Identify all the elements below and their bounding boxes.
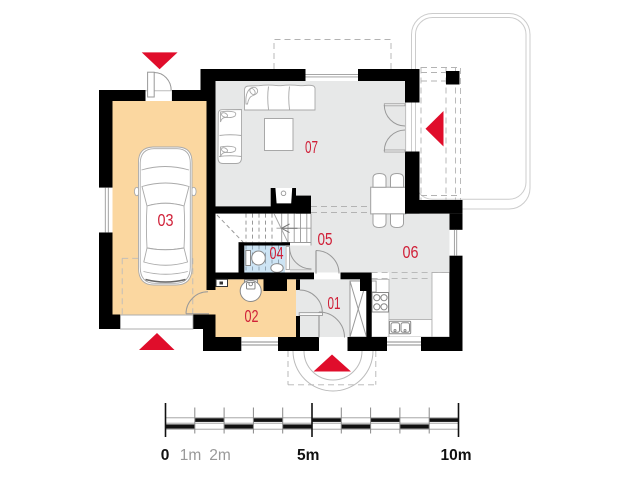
svg-text:02: 02	[245, 306, 259, 326]
svg-text:0: 0	[161, 447, 170, 464]
svg-text:06: 06	[403, 242, 419, 262]
svg-text:05: 05	[318, 229, 333, 249]
svg-text:5m: 5m	[297, 447, 319, 464]
svg-text:1m: 1m	[180, 447, 202, 464]
svg-text:2m: 2m	[209, 447, 231, 464]
svg-text:07: 07	[305, 137, 318, 157]
svg-text:04: 04	[270, 243, 284, 263]
svg-text:03: 03	[158, 210, 174, 230]
svg-text:01: 01	[328, 293, 341, 313]
svg-text:10m: 10m	[441, 447, 472, 464]
